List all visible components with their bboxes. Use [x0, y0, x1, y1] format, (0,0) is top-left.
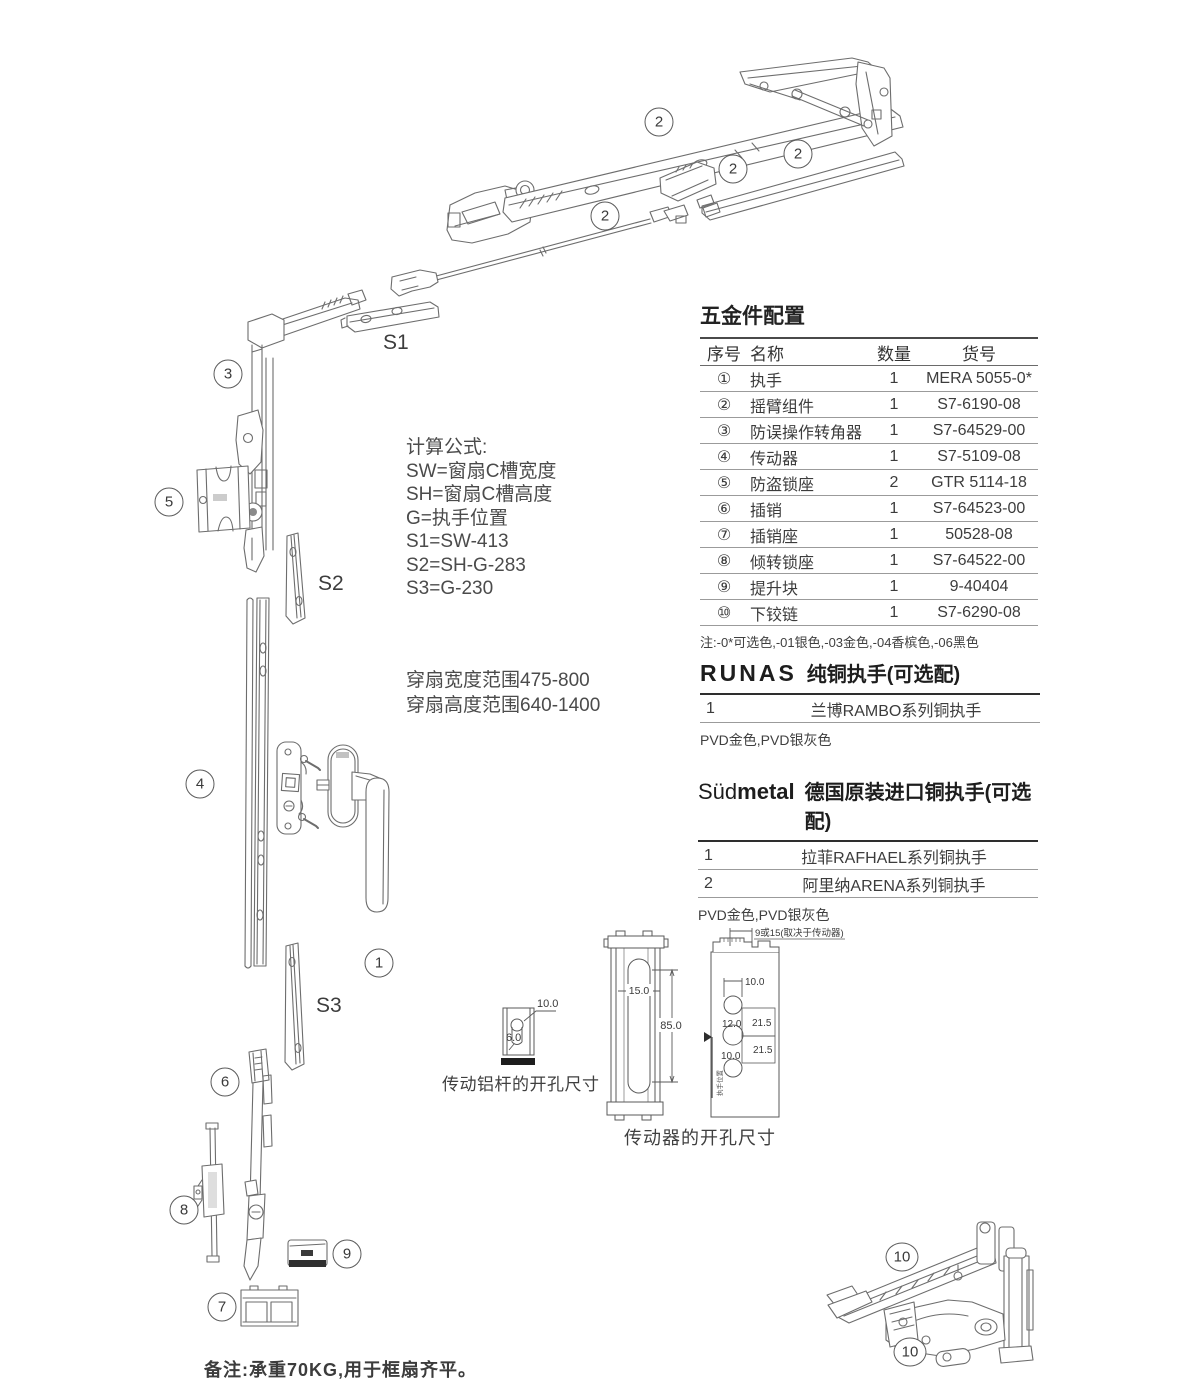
callout-5: 5	[155, 488, 184, 517]
range-line: 穿扇宽度范围475-800	[406, 668, 600, 693]
col-header-no: 序号	[700, 340, 748, 365]
runas-option-block: RUNAS 纯铜执手(可选配) 1 兰博RAMBO系列铜执手 PVD金色,PVD…	[700, 658, 1040, 750]
sudmetal-option-block: Südmetal 德国原装进口铜执手(可选配) 1 拉菲RAFHAEL系列铜执手…	[698, 776, 1038, 925]
dim-gear-height: 85.0	[660, 1020, 681, 1032]
hardware-table: 五金件配置 序号 名称 数量 货号 ① 执手 1 MERA 5055-0* ② …	[700, 300, 1038, 651]
runas-heading: RUNAS 纯铜执手(可选配)	[700, 658, 1040, 695]
s2-strip-art	[286, 533, 305, 624]
lift-block-art	[288, 1240, 327, 1267]
dim-rod-6: 6.0	[506, 1032, 521, 1044]
callout-7: 7	[208, 1293, 237, 1322]
sash-range-block: 穿扇宽度范围475-800 穿扇高度范围640-1400	[406, 668, 600, 718]
sudmetal-logo: Süd	[698, 779, 737, 805]
option-row: 1 兰博RAMBO系列铜执手	[700, 695, 1040, 723]
runas-logo: RUNAS	[700, 660, 797, 687]
callout-10: 10	[886, 1243, 919, 1272]
label-s3: S3	[316, 994, 342, 1018]
formula-line: SH=窗扇C槽高度	[406, 483, 556, 507]
footer-note: 备注:承重70KG,用于框扇齐平。	[204, 1356, 477, 1382]
range-line: 穿扇高度范围640-1400	[406, 693, 600, 718]
callout-6: 6	[211, 1068, 240, 1097]
table-row: ⑤ 防盗锁座 2 GTR 5114-18	[700, 470, 1038, 496]
dim-rod-10: 10.0	[537, 998, 558, 1010]
col-header-code: 货号	[920, 340, 1038, 365]
formula-line: SW=窗扇C槽宽度	[406, 460, 556, 484]
table-row: ① 执手 1 MERA 5055-0*	[700, 366, 1038, 392]
handle-position-vlabel: 执手位置	[715, 1070, 724, 1097]
label-s1: S1	[383, 331, 409, 355]
table-header-row: 序号 名称 数量 货号	[700, 339, 1038, 366]
s3-strip-art	[285, 943, 304, 1070]
rod-hole-caption: 传动铝杆的开孔尺寸	[442, 1070, 600, 1095]
pvd-note: PVD金色,PVD银灰色	[698, 898, 1038, 925]
col-header-qty: 数量	[868, 340, 920, 365]
callout-3: 3	[214, 360, 243, 389]
label-s2: S2	[318, 572, 344, 596]
tilt-keeper-art	[194, 1123, 224, 1262]
dim-gear-215b: 21.5	[753, 1045, 773, 1056]
table-row: ③ 防误操作转角器 1 S7-64529-00	[700, 418, 1038, 444]
swing-arm-assembly-art	[391, 58, 904, 296]
formula-line: S2=SH-G-283	[406, 554, 556, 578]
dim-gear-215a: 21.5	[752, 1018, 772, 1029]
dim-gear-width: 15.0	[629, 985, 650, 997]
callout-9: 9	[333, 1240, 362, 1269]
shoot-bolt-art	[244, 1049, 272, 1280]
table-row: ⑧ 倾转锁座 1 S7-64522-00	[700, 548, 1038, 574]
table-row: ⑥ 插销 1 S7-64523-00	[700, 496, 1038, 522]
callout-4: 4	[186, 770, 215, 799]
callout-10: 10	[894, 1338, 927, 1367]
callout-1: 1	[365, 949, 394, 978]
table-row: ② 摇臂组件 1 S7-6190-08	[700, 392, 1038, 418]
table-row: ⑩ 下铰链 1 S7-6290-08	[700, 600, 1038, 626]
bolt-keeper-art	[241, 1286, 298, 1326]
option-row: 2 阿里纳ARENA系列铜执手	[698, 870, 1038, 898]
option-row: 1 拉菲RAFHAEL系列铜执手	[698, 842, 1038, 870]
bottom-hinge-art	[827, 1222, 1033, 1367]
formula-block: 计算公式: SW=窗扇C槽宽度 SH=窗扇C槽高度 G=执手位置 S1=SW-4…	[406, 436, 556, 601]
rod-hole-drawing: 10.0 6.0	[501, 998, 558, 1065]
dim-gear-12: 12.0	[722, 1019, 742, 1030]
formula-line: S1=SW-413	[406, 530, 556, 554]
callout-2: 2	[719, 155, 748, 184]
callout-2: 2	[645, 108, 674, 137]
callout-2: 2	[784, 140, 813, 169]
callout-2: 2	[591, 202, 620, 231]
hardware-table-title: 五金件配置	[700, 300, 1038, 339]
dim-gear-top: 9或15(取决于传动器)	[755, 927, 844, 939]
color-option-note: 注:-0*可选色,-01银色,-03金色,-04香槟色,-06黑色	[700, 626, 1038, 651]
gearbox-hole-caption: 传动器的开孔尺寸	[624, 1124, 776, 1150]
formula-title: 计算公式:	[406, 436, 556, 460]
dim-gear-10a: 10.0	[745, 977, 765, 988]
table-row: ⑨ 提升块 1 9-40404	[700, 574, 1038, 600]
security-keeper-art	[197, 466, 250, 532]
handle-art	[317, 745, 389, 912]
sudmetal-heading: Südmetal 德国原装进口铜执手(可选配)	[698, 776, 1038, 842]
callout-8: 8	[170, 1196, 199, 1225]
drive-gear-art	[245, 598, 320, 968]
catalog-sheet: 10.0 6.0 15.0 85.0	[0, 0, 1200, 1400]
table-row: ⑦ 插销座 1 50528-08	[700, 522, 1038, 548]
pvd-note: PVD金色,PVD银灰色	[700, 723, 1040, 750]
dim-gear-10b: 10.0	[721, 1051, 741, 1062]
gearbox-hole-drawing: 15.0 85.0 9或15(取决于传动器) 10.0 12.0	[604, 927, 845, 1120]
col-header-name: 名称	[748, 340, 868, 365]
table-row: ④ 传动器 1 S7-5109-08	[700, 444, 1038, 470]
corner-drive-art	[236, 290, 366, 572]
formula-line: S3=G-230	[406, 577, 556, 601]
formula-line: G=执手位置	[406, 507, 556, 531]
